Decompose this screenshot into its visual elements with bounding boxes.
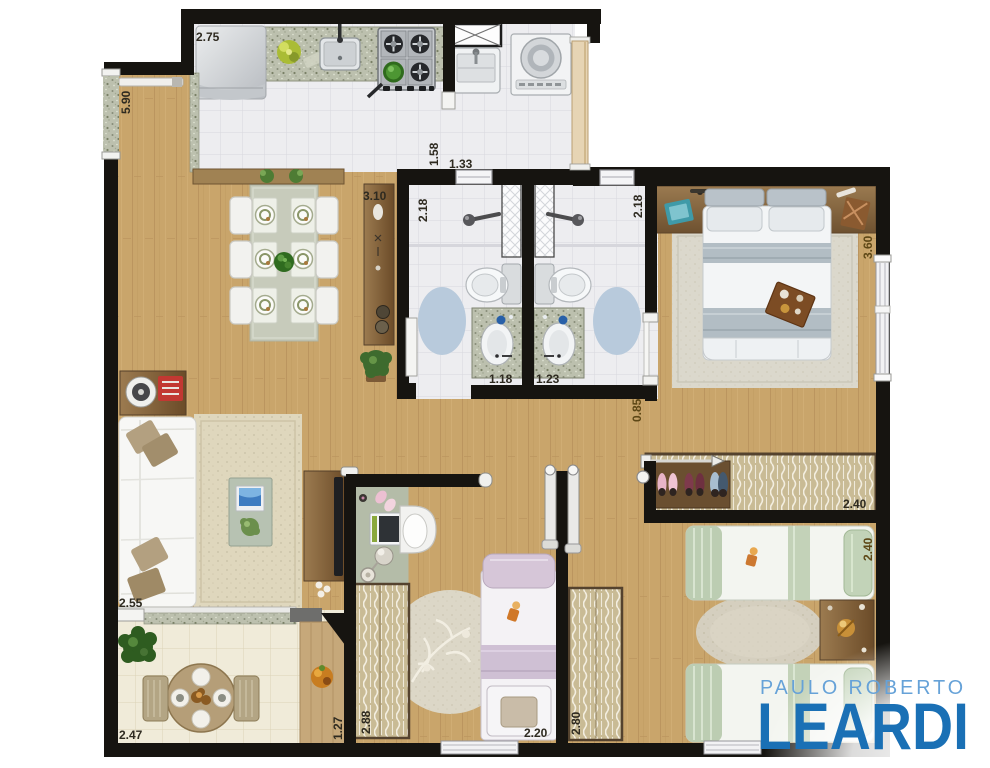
svg-text:2.88: 2.88: [359, 710, 373, 734]
svg-text:5.90: 5.90: [119, 90, 133, 114]
svg-text:1.58: 1.58: [427, 142, 441, 166]
svg-text:2.47: 2.47: [119, 728, 143, 742]
svg-text:0.85: 0.85: [630, 398, 644, 422]
svg-text:1.18: 1.18: [489, 372, 513, 386]
svg-text:2.40: 2.40: [843, 497, 867, 511]
svg-text:2.18: 2.18: [631, 194, 645, 218]
svg-text:3.60: 3.60: [861, 235, 875, 259]
svg-text:2.18: 2.18: [416, 198, 430, 222]
svg-text:1.27: 1.27: [331, 716, 345, 740]
svg-text:LEARDI: LEARDI: [757, 689, 969, 763]
svg-text:2.55: 2.55: [119, 596, 143, 610]
svg-text:3.10: 3.10: [363, 189, 387, 203]
svg-text:2.20: 2.20: [524, 726, 548, 740]
svg-text:1.23: 1.23: [536, 372, 560, 386]
svg-text:2.40: 2.40: [861, 537, 875, 561]
svg-text:2.75: 2.75: [196, 30, 220, 44]
svg-text:1.33: 1.33: [449, 157, 473, 171]
svg-text:2.80: 2.80: [569, 711, 583, 735]
